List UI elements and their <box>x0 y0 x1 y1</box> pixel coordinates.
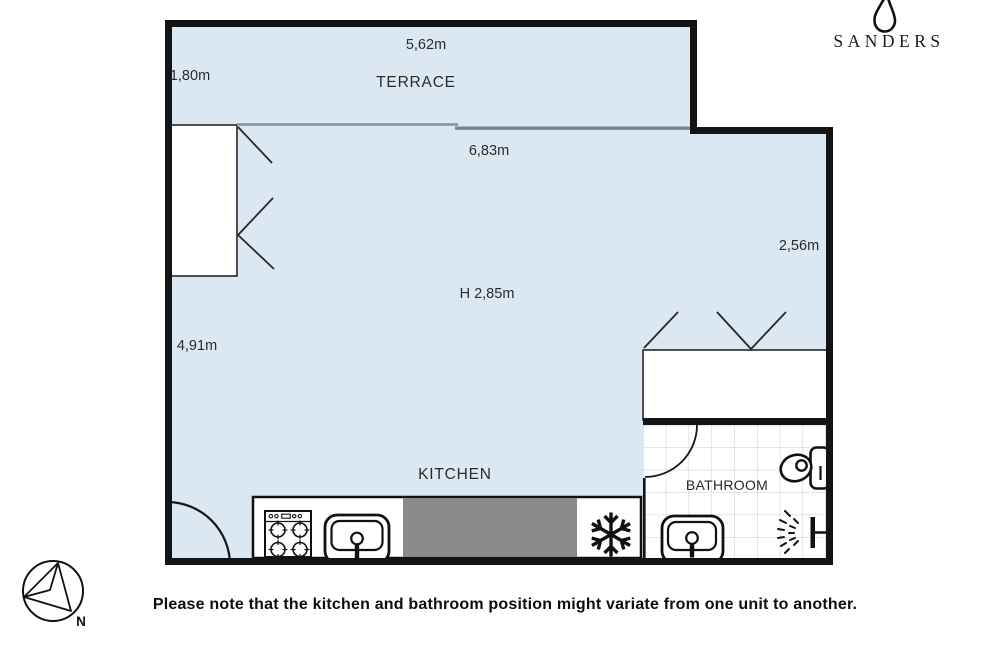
measurement-terrace-depth: 1,80m <box>170 68 210 84</box>
measurement-living-width: 6,83m <box>469 143 509 159</box>
wardrobe-left <box>167 125 237 276</box>
droplet-icon <box>875 0 896 32</box>
bathroom-sink-faucet-stem <box>690 545 694 558</box>
brand-name: SANDERS <box>833 31 944 51</box>
measurement-ceiling-height: H 2,85m <box>460 286 515 302</box>
wall-bottom <box>165 558 833 565</box>
room-label-bathroom: BATHROOM <box>686 477 768 493</box>
measurement-right-wall-depth: 2,56m <box>779 238 819 254</box>
bathroom-wall-segment <box>643 478 646 558</box>
bathroom-sink-faucet <box>686 532 698 544</box>
toilet-drain <box>796 460 806 470</box>
wall-right <box>826 127 833 565</box>
kitchen-sink-icon <box>325 515 389 563</box>
wall-left <box>165 20 172 565</box>
brand-logo: SANDERS <box>833 0 944 51</box>
room-label-terrace: TERRACE <box>376 74 456 91</box>
measurement-living-depth: 4,91m <box>177 338 217 354</box>
bathroom-sink-icon <box>662 516 723 563</box>
wardrobe-right <box>643 350 828 420</box>
wall-terrace-right <box>690 20 697 131</box>
compass-circle <box>23 561 83 621</box>
counter-worktop-gray <box>403 498 577 556</box>
floorplan-drawing: 5,62m 1,80m TERRACE 6,83m 2,56m H 2,85m … <box>0 0 1000 666</box>
compass: N <box>23 561 86 629</box>
compass-north-label: N <box>76 614 86 629</box>
disclaimer-note: Please note that the kitchen and bathroo… <box>153 596 857 613</box>
kitchen-sink-faucet-stem <box>355 545 359 558</box>
shower-head-bar <box>811 517 816 548</box>
measurement-terrace-width: 5,62m <box>406 37 446 53</box>
wall-bathroom-top <box>643 418 833 425</box>
stove-icon <box>265 511 311 557</box>
wall-top-right <box>690 127 833 134</box>
room-label-kitchen: KITCHEN <box>418 466 492 483</box>
wall-terrace-top <box>165 20 697 27</box>
living-floor-left <box>172 125 690 558</box>
kitchen-sink-faucet <box>351 533 363 545</box>
floorplan-page: 5,62m 1,80m TERRACE 6,83m 2,56m H 2,85m … <box>0 0 1000 666</box>
